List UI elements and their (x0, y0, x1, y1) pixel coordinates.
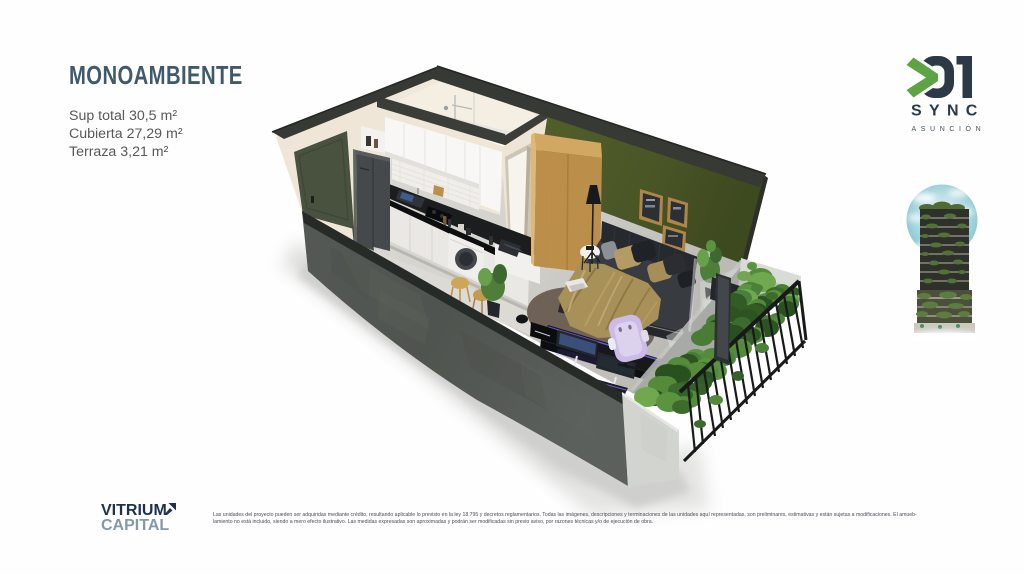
svg-text:SYNC: SYNC (911, 103, 985, 120)
svg-text:ASUNCIÓN: ASUNCIÓN (912, 124, 986, 133)
